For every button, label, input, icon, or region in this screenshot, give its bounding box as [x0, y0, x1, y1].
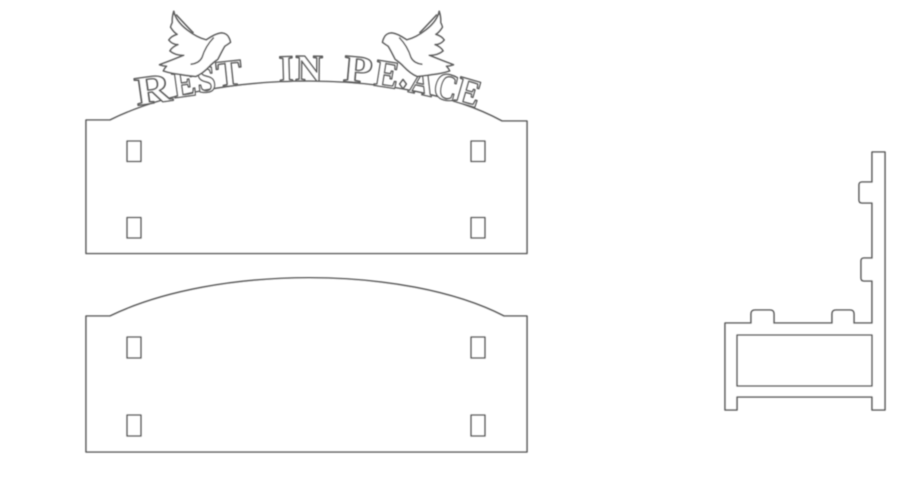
svg-text:P: P	[342, 48, 374, 93]
svg-text:N: N	[295, 48, 323, 90]
svg-text:I: I	[278, 48, 294, 90]
